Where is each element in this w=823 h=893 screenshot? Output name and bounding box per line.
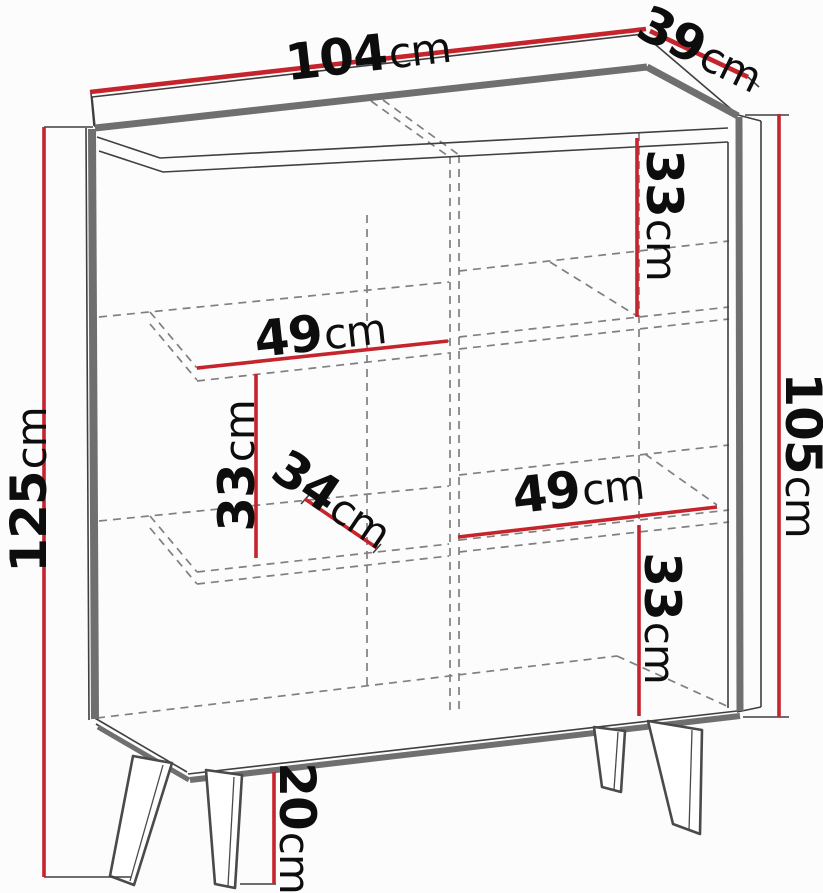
front-left-leg	[110, 756, 172, 885]
shelf-ur-back	[459, 241, 729, 271]
shelf-ur-front	[459, 307, 729, 337]
interior-dashed-lines	[97, 100, 729, 718]
floor-back-edge-left	[97, 656, 617, 718]
shelf-ll-side-2	[150, 528, 197, 584]
shelf-ul-side-2	[150, 324, 197, 380]
inner-ceiling-edge	[97, 128, 728, 158]
front-left-edge	[92, 129, 95, 719]
shelf-lr-front	[459, 510, 729, 540]
cabinet-drawing: 104cm 39cm 125cm 105cm 33cm 49cm 33cm 34…	[0, 0, 823, 893]
legs	[110, 721, 702, 888]
front-right-edge	[739, 117, 740, 711]
mid-left-leg	[206, 770, 242, 888]
front-right-leg	[648, 721, 702, 834]
divider-top-edge-2	[383, 100, 459, 155]
shelf-lr-side	[645, 454, 717, 505]
right-shelf-width-label: 49cm	[509, 453, 646, 526]
shelf-ur-front-2	[459, 319, 729, 349]
divider-top-edge	[371, 101, 448, 156]
shelf-lr-front-2	[459, 522, 729, 552]
shelf-ll-front-2	[197, 556, 449, 584]
leg-height-label: 20cm	[268, 762, 326, 893]
back-right-leg	[594, 727, 625, 792]
shelf-ll-front	[197, 544, 449, 572]
bottom-right-compartment-label: 33cm	[633, 552, 691, 684]
shelf-ul-side	[150, 312, 197, 368]
body-height-label: 105cm	[774, 372, 823, 537]
depth-label: 39cm	[629, 0, 773, 104]
left-compartment-label: 33cm	[208, 400, 266, 532]
shelf-ll-side	[150, 516, 197, 572]
shelf-ur-side	[550, 262, 637, 316]
width-label: 104cm	[282, 16, 453, 92]
total-height-label: 125cm	[0, 407, 58, 572]
shelf-depth-label: 34cm	[262, 438, 404, 560]
top-right-compartment-label: 33cm	[635, 149, 693, 281]
left-shelf-width-label: 49cm	[251, 297, 388, 369]
dimension-diagram: 104cm 39cm 125cm 105cm 33cm 49cm 33cm 34…	[0, 0, 823, 893]
